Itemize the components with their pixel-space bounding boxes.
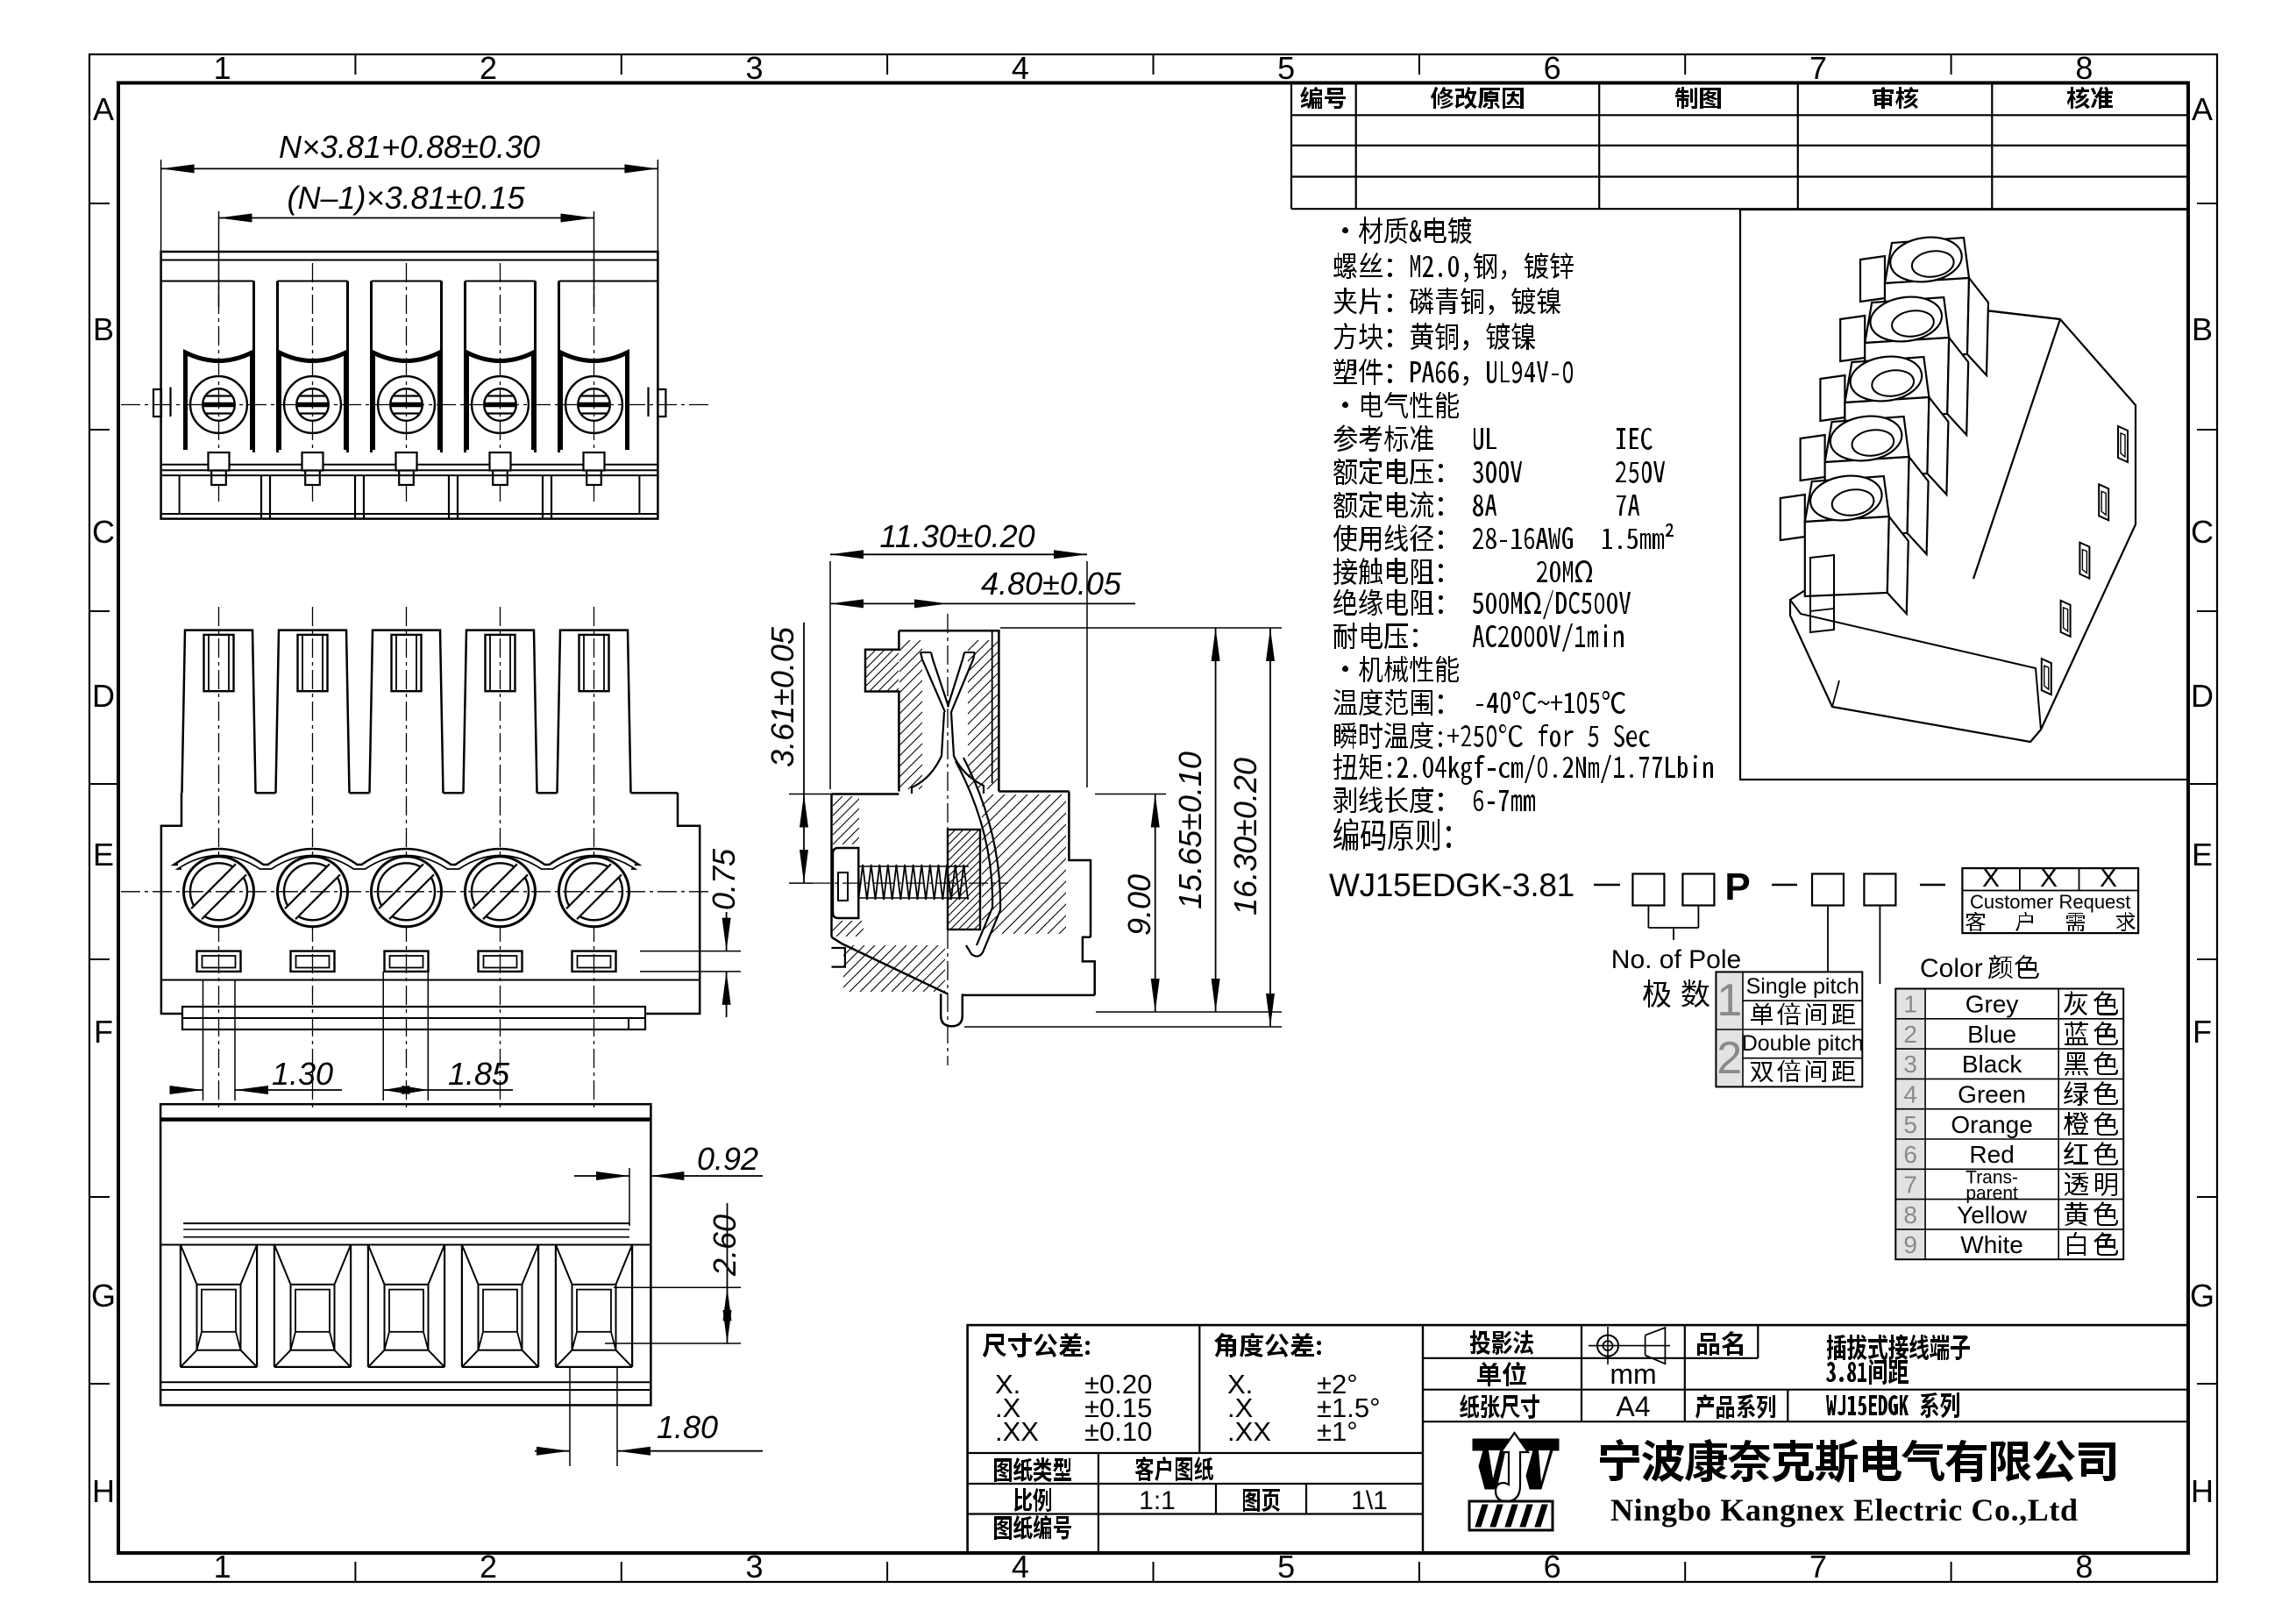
svg-text:6: 6 xyxy=(1544,50,1561,86)
svg-text:8: 8 xyxy=(1903,1201,1917,1229)
svg-text:1.30: 1.30 xyxy=(272,1056,333,1092)
svg-text:1\1: 1\1 xyxy=(1351,1486,1388,1515)
svg-text:9: 9 xyxy=(1903,1231,1917,1258)
svg-text:Double pitch: Double pitch xyxy=(1742,1031,1864,1056)
svg-text:2: 2 xyxy=(1903,1021,1917,1048)
svg-text:11.30±0.20: 11.30±0.20 xyxy=(879,518,1034,554)
svg-text:White: White xyxy=(1960,1231,2023,1258)
svg-text:No. of Pole: No. of Pole xyxy=(1611,945,1741,974)
svg-text:3: 3 xyxy=(1903,1051,1917,1078)
svg-text:H: H xyxy=(92,1473,115,1509)
svg-text:Orange: Orange xyxy=(1951,1111,2032,1138)
svg-text:Grey: Grey xyxy=(1965,991,2019,1018)
svg-text:G: G xyxy=(91,1278,116,1314)
svg-text:7: 7 xyxy=(1903,1172,1917,1199)
svg-text:F: F xyxy=(94,1014,113,1050)
svg-text:C: C xyxy=(92,514,115,550)
svg-text:.XX: .XX xyxy=(1227,1416,1271,1447)
svg-text:F: F xyxy=(2193,1014,2212,1050)
svg-text:±0.10: ±0.10 xyxy=(1084,1416,1152,1447)
svg-text:X: X xyxy=(2100,864,2117,893)
svg-text:mm: mm xyxy=(1610,1358,1656,1390)
svg-text:P: P xyxy=(1724,865,1750,908)
svg-text:1.80: 1.80 xyxy=(657,1409,718,1445)
svg-text:1:1: 1:1 xyxy=(1139,1486,1176,1515)
svg-text:6: 6 xyxy=(1903,1141,1917,1168)
svg-text:A: A xyxy=(93,91,114,127)
svg-text:WJ15EDGK-3.81: WJ15EDGK-3.81 xyxy=(1329,867,1575,903)
svg-text:±1°: ±1° xyxy=(1317,1416,1358,1447)
svg-text:0.75: 0.75 xyxy=(706,848,742,910)
svg-text:Yellow: Yellow xyxy=(1957,1201,2028,1229)
svg-text:A4: A4 xyxy=(1616,1391,1650,1422)
svg-text:H: H xyxy=(2191,1473,2214,1509)
svg-text:G: G xyxy=(2190,1278,2214,1314)
svg-text:Blue: Blue xyxy=(1967,1021,2016,1048)
svg-text:9.00: 9.00 xyxy=(1121,874,1157,936)
svg-text:Green: Green xyxy=(1958,1081,2026,1108)
svg-text:16.30±0.20: 16.30±0.20 xyxy=(1227,758,1263,915)
svg-text:4.80±0.05: 4.80±0.05 xyxy=(981,566,1122,602)
svg-text:B: B xyxy=(2192,311,2213,347)
svg-text:0.92: 0.92 xyxy=(697,1141,758,1177)
svg-text:Customer Request: Customer Request xyxy=(1970,891,2130,913)
svg-text:4: 4 xyxy=(1012,50,1029,86)
svg-text:2.60: 2.60 xyxy=(707,1214,743,1277)
svg-text:D: D xyxy=(2191,678,2214,714)
svg-text:C: C xyxy=(2191,514,2214,550)
svg-text:1: 1 xyxy=(214,1549,231,1585)
svg-text:E: E xyxy=(2192,837,2213,873)
svg-text:4: 4 xyxy=(1903,1081,1917,1108)
svg-text:D: D xyxy=(92,678,115,714)
svg-text:A: A xyxy=(2192,91,2213,127)
svg-text:8: 8 xyxy=(2075,50,2093,86)
svg-text:5: 5 xyxy=(1903,1111,1917,1138)
svg-text:X: X xyxy=(1982,864,2000,893)
svg-text:Red: Red xyxy=(1969,1141,2014,1168)
svg-text:15.65±0.10: 15.65±0.10 xyxy=(1172,751,1208,909)
svg-text:3: 3 xyxy=(745,50,763,86)
svg-text:B: B xyxy=(93,311,114,347)
svg-text:Black: Black xyxy=(1962,1051,2022,1078)
svg-text:1: 1 xyxy=(1903,991,1917,1018)
svg-text:3.61±0.05: 3.61±0.05 xyxy=(764,626,800,767)
svg-text:2: 2 xyxy=(480,1549,497,1585)
svg-text:2: 2 xyxy=(1717,1033,1742,1084)
svg-text:3: 3 xyxy=(745,1549,763,1585)
svg-text:Color: Color xyxy=(1920,954,1983,983)
svg-text:Single pitch: Single pitch xyxy=(1746,974,1859,999)
svg-text:Ningbo Kangnex Electric Co.,Lt: Ningbo Kangnex Electric Co.,Ltd xyxy=(1610,1492,2079,1528)
svg-text:E: E xyxy=(93,837,114,873)
svg-text:.XX: .XX xyxy=(995,1416,1039,1447)
svg-text:N×3.81+0.88±0.30: N×3.81+0.88±0.30 xyxy=(279,129,540,165)
svg-text:X: X xyxy=(2040,864,2058,893)
svg-text:7: 7 xyxy=(1809,50,1827,86)
svg-text:(N–1)×3.81±0.15: (N–1)×3.81±0.15 xyxy=(288,180,526,216)
svg-text:1: 1 xyxy=(214,50,231,86)
svg-text:5: 5 xyxy=(1277,50,1295,86)
svg-text:2: 2 xyxy=(480,50,497,86)
svg-text:1: 1 xyxy=(1717,975,1742,1026)
svg-text:1.85: 1.85 xyxy=(448,1056,510,1092)
